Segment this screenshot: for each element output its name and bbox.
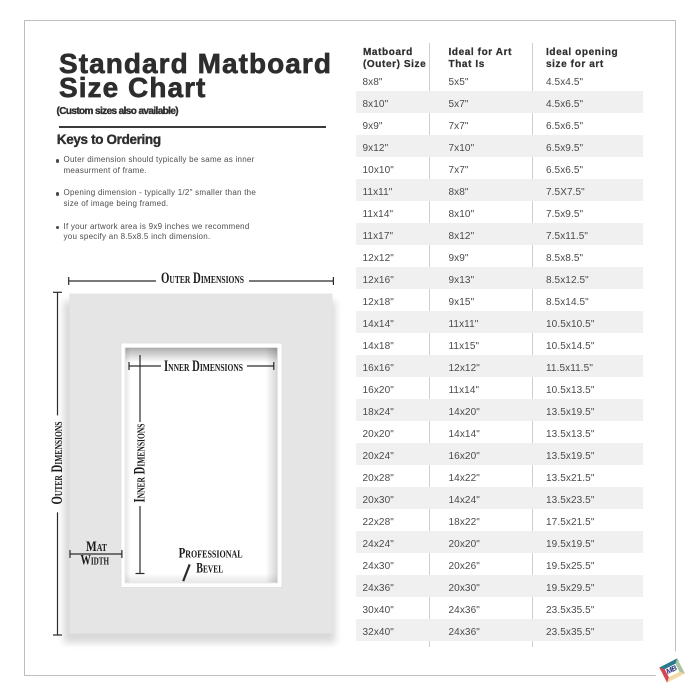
svg-text:Outer Dimensions: Outer Dimensions [49,422,66,505]
svg-text:Inner Dimensions: Inner Dimensions [132,424,149,503]
svg-text:Outer Dimensions: Outer Dimensions [161,270,244,287]
svg-text:Width: Width [81,552,110,568]
svg-text:Bevel: Bevel [196,561,223,577]
svg-text:Inner Dimensions: Inner Dimensions [164,358,243,375]
svg-text:Professional: Professional [179,546,243,562]
